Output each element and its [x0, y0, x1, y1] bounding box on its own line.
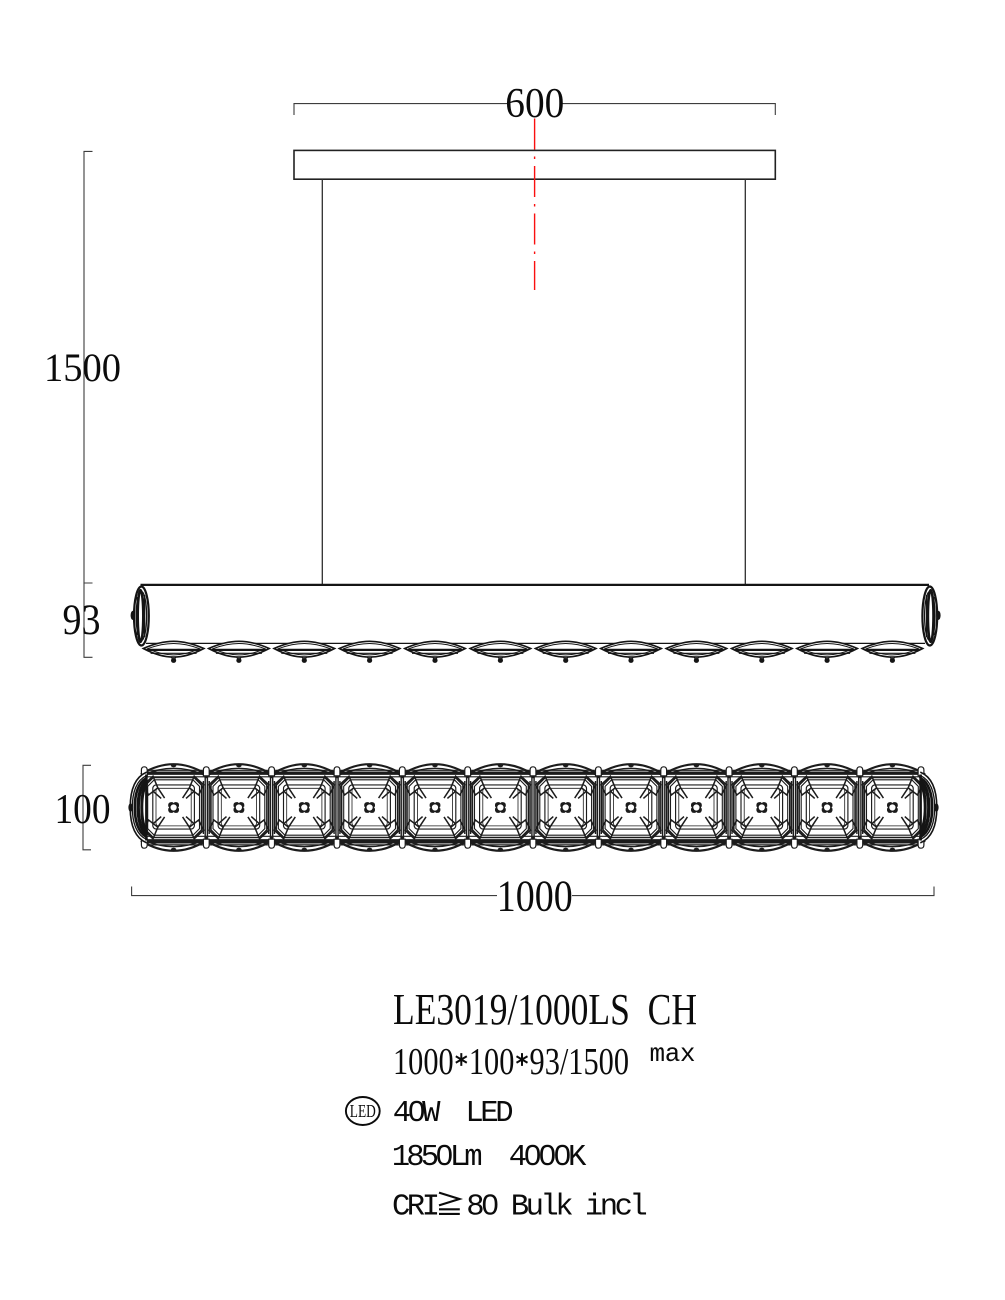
svg-text:LED: LED	[465, 1097, 513, 1131]
svg-text:100: 100	[55, 787, 111, 833]
svg-text:LED: LED	[350, 1101, 376, 1121]
svg-text:LE3019/1000LS CH: LE3019/1000LS CH	[393, 984, 697, 1034]
svg-text:1000*100*93/1500: 1000*100*93/1500	[393, 1041, 629, 1083]
svg-text:1500: 1500	[44, 345, 121, 390]
svg-text:1850Lm: 1850Lm	[392, 1141, 483, 1175]
svg-text:max: max	[650, 1039, 696, 1069]
svg-text:93: 93	[63, 597, 101, 644]
svg-text:1000: 1000	[497, 871, 573, 921]
svg-text:80 Bulk incl: 80 Bulk incl	[466, 1190, 648, 1224]
svg-text:CRI: CRI	[392, 1190, 440, 1224]
